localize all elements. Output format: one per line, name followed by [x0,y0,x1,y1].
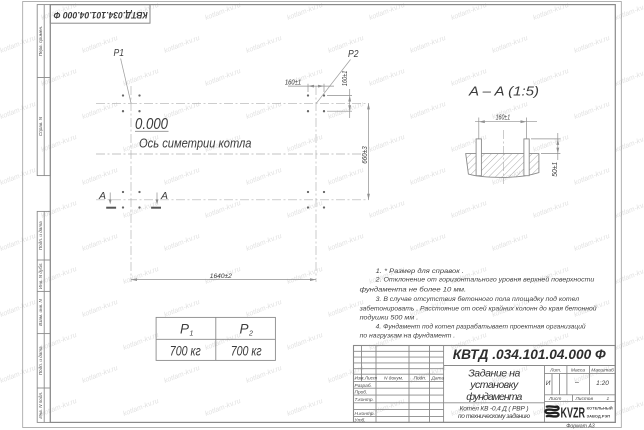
svg-text:4. Фундамент под котел разраба: 4. Фундамент под котел разрабатывает про… [376,322,586,330]
svg-text:kotlam-kv.ru: kotlam-kv.ru [163,35,201,55]
svg-text:Масса: Масса [571,368,586,374]
svg-text:kotlam-kv.ru: kotlam-kv.ru [81,167,119,187]
svg-text:kotlam-kv.ru: kotlam-kv.ru [327,167,365,187]
svg-text:P: P [180,322,189,337]
svg-text:kotlam-kv.ru: kotlam-kv.ru [122,332,160,352]
svg-text:Ось симетрии котла: Ось симетрии котла [139,136,252,151]
svg-text:P2: P2 [348,49,359,60]
svg-text:kotlam-kv.ru: kotlam-kv.ru [163,167,201,187]
svg-text:Формат А3: Формат А3 [566,423,594,429]
svg-text:Дата: Дата [431,376,445,382]
svg-text:A: A [98,190,106,202]
svg-text:kotlam-kv.ru: kotlam-kv.ru [532,200,570,220]
svg-text:kotlam-kv.ru: kotlam-kv.ru [409,35,447,55]
svg-text:kotlam-kv.ru: kotlam-kv.ru [327,233,365,253]
svg-text:kotlam-kv.ru: kotlam-kv.ru [0,233,37,253]
svg-text:kotlam-kv.ru: kotlam-kv.ru [40,332,78,352]
svg-text:kotlam-kv.ru: kotlam-kv.ru [409,101,447,121]
svg-text:kotlam-kv.ru: kotlam-kv.ru [81,233,119,253]
svg-text:kotlam-kv.ru: kotlam-kv.ru [614,398,644,418]
svg-text:kotlam-kv.ru: kotlam-kv.ru [163,233,201,253]
svg-text:Листов: Листов [575,396,594,402]
svg-text:kotlam-kv.ru: kotlam-kv.ru [286,266,324,286]
svg-text:kotlam-kv.ru: kotlam-kv.ru [0,35,37,55]
svg-text:50±1: 50±1 [552,162,559,177]
svg-text:Взам. инв. N: Взам. инв. N [38,298,43,325]
svg-text:kotlam-kv.ru: kotlam-kv.ru [81,299,119,319]
svg-text:kotlam-kv.ru: kotlam-kv.ru [573,35,611,55]
svg-text:kotlam-kv.ru: kotlam-kv.ru [122,68,160,88]
svg-text:kotlam-kv.ru: kotlam-kv.ru [40,134,78,154]
svg-text:kotlam-kv.ru: kotlam-kv.ru [286,398,324,418]
svg-text:kotlam-kv.ru: kotlam-kv.ru [614,2,644,22]
svg-text:1640±2: 1640±2 [210,273,232,280]
svg-text:KVZR: KVZR [561,405,586,422]
svg-text:kotlam-kv.ru: kotlam-kv.ru [81,101,119,121]
svg-text:kotlam-kv.ru: kotlam-kv.ru [573,167,611,187]
svg-text:kotlam-kv.ru: kotlam-kv.ru [286,134,324,154]
svg-text:kotlam-kv.ru: kotlam-kv.ru [0,167,37,187]
svg-text:КВТД.034.101.04.000 Ф: КВТД.034.101.04.000 Ф [54,10,148,20]
svg-text:kotlam-kv.ru: kotlam-kv.ru [40,200,78,220]
svg-text:kotlam-kv.ru: kotlam-kv.ru [122,200,160,220]
svg-text:kotlam-kv.ru: kotlam-kv.ru [245,101,283,121]
svg-text:kotlam-kv.ru: kotlam-kv.ru [491,233,529,253]
svg-text:kotlam-kv.ru: kotlam-kv.ru [450,200,488,220]
svg-text:kotlam-kv.ru: kotlam-kv.ru [450,134,488,154]
svg-text:фундамента не более 10 мм.: фундамента не более 10 мм. [360,285,467,293]
svg-text:kotlam-kv.ru: kotlam-kv.ru [532,134,570,154]
svg-text:kotlam-kv.ru: kotlam-kv.ru [327,101,365,121]
svg-text:Задание на: Задание на [468,367,520,379]
svg-text:Утб.: Утб. [355,417,366,423]
svg-text:–: – [574,380,579,387]
svg-text:2. Отклонение от горизонтально: 2. Отклонение от горизонтального уровня … [375,275,595,283]
svg-text:1: 1 [607,396,610,402]
svg-text:0.000: 0.000 [135,116,168,133]
svg-text:P1: P1 [114,48,125,59]
svg-text:kotlam-kv.ru: kotlam-kv.ru [40,398,78,418]
svg-text:Изм.Лист: Изм.Лист [355,376,378,382]
svg-text:kotlam-kv.ru: kotlam-kv.ru [0,101,37,121]
svg-text:kotlam-kv.ru: kotlam-kv.ru [163,299,201,319]
svg-text:Масштаб: Масштаб [591,368,614,374]
svg-text:700 кг: 700 кг [170,344,201,359]
svg-text:2: 2 [248,331,253,338]
svg-text:Н.контр.: Н.контр. [355,411,375,417]
svg-text:Перв. примен.: Перв. примен. [38,26,43,57]
svg-text:kotlam-kv.ru: kotlam-kv.ru [614,200,644,220]
svg-text:Справ. N: Справ. N [38,116,43,136]
svg-text:kotlam-kv.ru: kotlam-kv.ru [286,200,324,220]
svg-text:Т.контр.: Т.контр. [355,397,374,403]
svg-text:P: P [240,322,249,337]
svg-text:Инв. N подл.: Инв. N подл. [38,392,43,419]
svg-text:kotlam-kv.ru: kotlam-kv.ru [491,35,529,55]
svg-text:kotlam-kv.ru: kotlam-kv.ru [163,101,201,121]
svg-text:kotlam-kv.ru: kotlam-kv.ru [245,35,283,55]
svg-text:Лист: Лист [548,396,561,402]
svg-text:kotlam-kv.ru: kotlam-kv.ru [409,167,447,187]
svg-text:kotlam-kv.ru: kotlam-kv.ru [122,266,160,286]
svg-text:Подп. и дата: Подп. и дата [38,221,43,250]
svg-text:kotlam-kv.ru: kotlam-kv.ru [286,332,324,352]
svg-text:Разраб.: Разраб. [355,383,372,389]
svg-text:kotlam-kv.ru: kotlam-kv.ru [368,134,406,154]
svg-text:kotlam-kv.ru: kotlam-kv.ru [368,68,406,88]
svg-text:kotlam-kv.ru: kotlam-kv.ru [245,167,283,187]
svg-text:kotlam-kv.ru: kotlam-kv.ru [614,266,644,286]
svg-text:kotlam-kv.ru: kotlam-kv.ru [204,200,242,220]
svg-text:kotlam-kv.ru: kotlam-kv.ru [40,266,78,286]
svg-text:1. * Размер для справок .: 1. * Размер для справок . [376,267,464,275]
svg-text:ЗАВОД.РЭП: ЗАВОД.РЭП [587,413,611,418]
svg-text:Инв. N дубл.: Инв. N дубл. [38,262,43,289]
svg-text:Лит.: Лит. [549,368,561,374]
svg-text:И: И [546,380,551,387]
svg-text:700 кг: 700 кг [231,344,262,359]
svg-text:kotlam-kv.ru: kotlam-kv.ru [122,398,160,418]
svg-text:kotlam-kv.ru: kotlam-kv.ru [0,299,37,319]
svg-text:kotlam-kv.ru: kotlam-kv.ru [0,365,37,385]
svg-text:3. В случае отсутствия бетонно: 3. В случае отсутствия бетонного пола пл… [376,295,580,303]
svg-text:kotlam-kv.ru: kotlam-kv.ru [245,233,283,253]
svg-text:kotlam-kv.ru: kotlam-kv.ru [614,134,644,154]
svg-text:N докум.: N докум. [384,376,403,382]
svg-text:kotlam-kv.ru: kotlam-kv.ru [573,101,611,121]
svg-text:1:20: 1:20 [596,380,609,387]
svg-text:1: 1 [190,331,194,338]
svg-text:фундамента: фундамента [466,391,522,403]
svg-text:160±1: 160±1 [496,115,511,122]
svg-text:по техническому заданию: по техническому заданию [458,412,530,420]
svg-text:kotlam-kv.ru: kotlam-kv.ru [409,233,447,253]
svg-text:Подп. и дата: Подп. и дата [38,346,43,375]
svg-text:КОТЕЛЬНЫЙ: КОТЕЛЬНЫЙ [587,406,613,411]
svg-text:подушки 500 мм .: подушки 500 мм . [360,314,419,322]
svg-text:по нагрузкам на фундамент .: по нагрузкам на фундамент . [360,332,456,340]
svg-text:kotlam-kv.ru: kotlam-kv.ru [204,398,242,418]
svg-text:kotlam-kv.ru: kotlam-kv.ru [614,332,644,352]
svg-text:kotlam-kv.ru: kotlam-kv.ru [245,299,283,319]
svg-text:Проб.: Проб. [355,390,368,396]
svg-text:kotlam-kv.ru: kotlam-kv.ru [81,365,119,385]
svg-text:160±1: 160±1 [342,71,349,87]
svg-text:Подп.: Подп. [414,376,427,382]
svg-text:установку: установку [469,379,519,391]
svg-text:kotlam-kv.ru: kotlam-kv.ru [614,68,644,88]
svg-text:A – A (1:5): A – A (1:5) [468,85,539,99]
svg-text:660±3: 660±3 [362,146,369,163]
svg-text:kotlam-kv.ru: kotlam-kv.ru [245,365,283,385]
svg-text:Котел КВ -0,4 Д ( РВР ): Котел КВ -0,4 Д ( РВР ) [460,406,529,413]
svg-text:КВТД .034.101.04.000 Ф: КВТД .034.101.04.000 Ф [453,347,606,362]
svg-text:kotlam-kv.ru: kotlam-kv.ru [327,35,365,55]
svg-text:A: A [160,190,168,202]
svg-text:забетонировать . Расстояние от: забетонировать . Расстояние от осей край… [359,305,597,313]
svg-text:kotlam-kv.ru: kotlam-kv.ru [409,365,447,385]
svg-text:kotlam-kv.ru: kotlam-kv.ru [163,365,201,385]
svg-text:kotlam-kv.ru: kotlam-kv.ru [327,365,365,385]
svg-text:160±1: 160±1 [285,79,301,86]
svg-text:kotlam-kv.ru: kotlam-kv.ru [204,68,242,88]
svg-text:kotlam-kv.ru: kotlam-kv.ru [368,200,406,220]
svg-text:kotlam-kv.ru: kotlam-kv.ru [573,233,611,253]
